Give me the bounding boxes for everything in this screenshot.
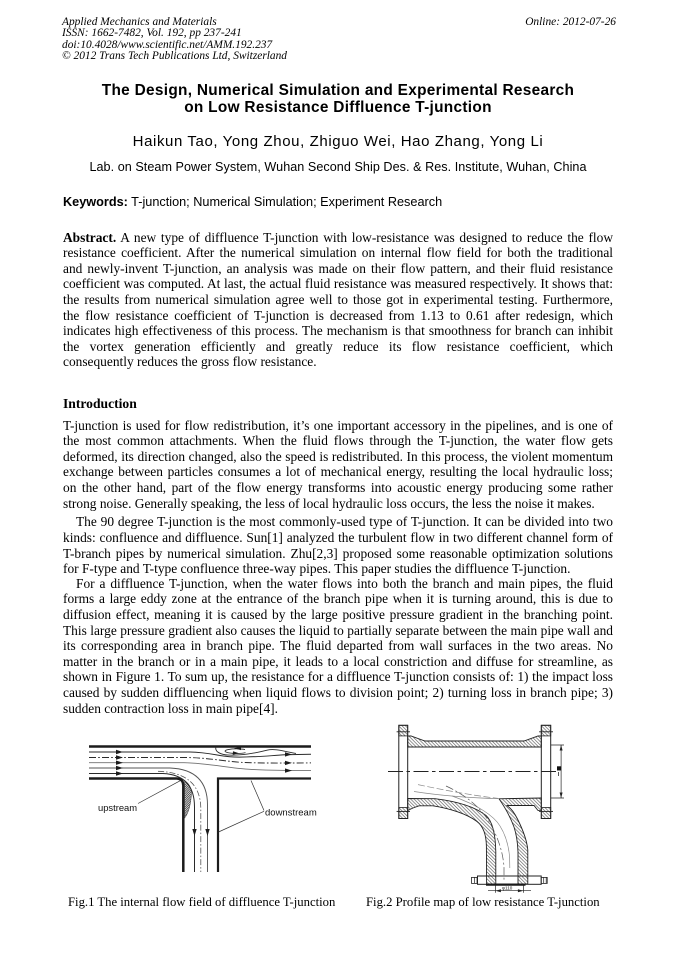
svg-text:downstream: downstream xyxy=(265,808,317,819)
svg-text:φ110: φ110 xyxy=(502,885,513,890)
svg-text:upstream: upstream xyxy=(98,802,137,813)
